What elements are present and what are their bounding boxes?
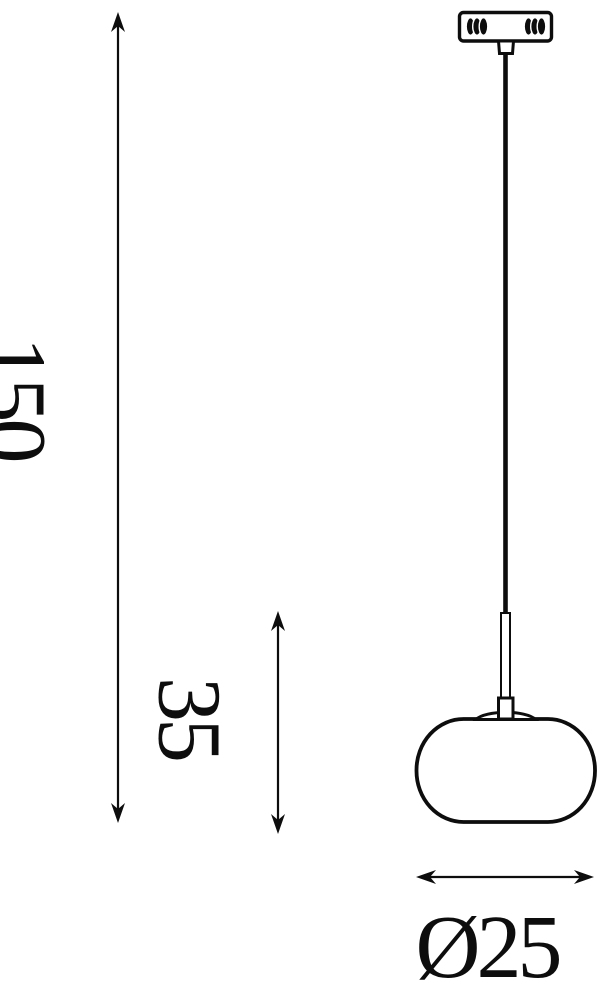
canopy-coil-left xyxy=(466,18,488,36)
dimension-shade-height: 35 xyxy=(140,611,286,834)
glass-shade xyxy=(417,719,596,822)
lamp-dimension-diagram: 150 35 Ø25 xyxy=(0,0,608,991)
pendant-lamp-drawing xyxy=(417,13,596,823)
stem-tube xyxy=(501,613,510,699)
dimension-overall-height: 150 xyxy=(0,12,125,823)
shade-diameter-label: Ø25 xyxy=(416,898,560,991)
canopy-coil-right xyxy=(524,18,546,36)
shade-height-label: 35 xyxy=(140,677,239,760)
overall-height-label: 150 xyxy=(0,337,64,461)
diagram-canvas: 150 35 Ø25 xyxy=(0,0,608,991)
dimension-shade-diameter: Ø25 xyxy=(416,870,595,991)
socket xyxy=(499,698,514,719)
canopy-neck xyxy=(499,41,514,54)
coil-icon xyxy=(537,18,546,36)
coil-icon xyxy=(479,18,488,36)
